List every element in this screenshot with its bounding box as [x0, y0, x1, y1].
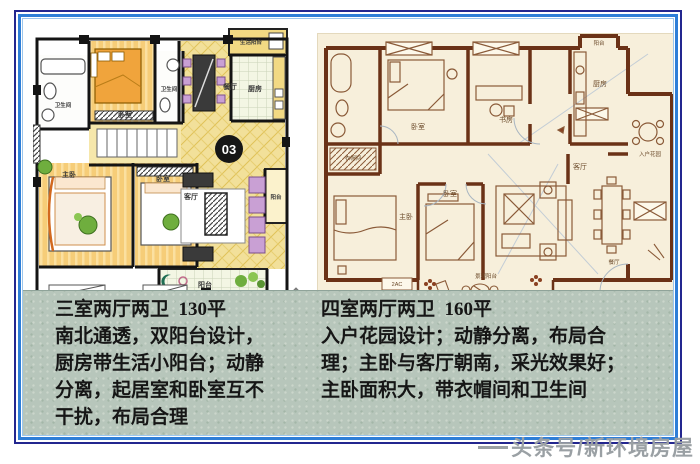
left-desc-line-4: 分离，起居室和卧室互不 — [55, 377, 305, 404]
room-label-entry-garden: 入户花园 — [639, 150, 662, 158]
floorplan-left-unit-03: 03 卫生间 卧室 卫生间 餐厅 生活阳台 厨房 主卧 卧室 客厅 阳台 阳台 — [33, 27, 307, 305]
room-label-view-balcony: 景观阳台 — [475, 272, 498, 280]
room-label-bedroom-bottom: 卧室 — [443, 189, 457, 198]
room-label-service-balcony: 生活阳台 — [240, 38, 263, 46]
right-desc-line-1: 四室两厅两卫 160平 — [321, 296, 671, 323]
right-desc-line-3: 理；主卧与客厅朝南，采光效果好； — [321, 350, 671, 377]
plant — [38, 160, 52, 174]
entry-furniture — [648, 244, 664, 260]
unit-badge-number: 03 — [222, 142, 236, 157]
room-label-living: 客厅 — [573, 162, 587, 171]
window-symbols — [386, 42, 666, 220]
room-label-balcony-side: 阳台 — [270, 193, 282, 201]
room-label-dining: 餐厅 — [608, 258, 620, 266]
right-desc-line-2: 入户花园设计；动静分离，布局合 — [321, 323, 671, 350]
left-unit-description: 三室两厅两卫 130平 南北通透，双阳台设计， 厨房带生活小阳台；动静 分离，起… — [55, 296, 305, 431]
room-label-master: 主卧 — [399, 212, 413, 221]
description-band: 三室两厅两卫 130平 南北通透，双阳台设计， 厨房带生活小阳台；动静 分离，起… — [23, 290, 673, 435]
floorplan-right-drawing: 2AC 卧室 书房 厨房 阳台 入户花园 衣帽间 主卧 卧室 客厅 餐厅 景观阳… — [318, 34, 674, 302]
room-label-dining: 餐厅 — [222, 82, 237, 91]
floorplan-right-unit: 2AC 卧室 书房 厨房 阳台 入户花园 衣帽间 主卧 卧室 客厅 餐厅 景观阳… — [317, 33, 674, 303]
watermark: 头条号/新环境房屋 — [478, 432, 694, 462]
ac-platform: 2AC — [382, 278, 412, 290]
room-label-closet: 衣帽间 — [345, 154, 362, 162]
unit-badge: 03 — [215, 135, 243, 163]
outer-walls — [326, 36, 672, 280]
right-desc-line-4: 主卧面积大，带衣帽间和卫生间 — [321, 377, 671, 404]
room-label-kitchen: 厨房 — [248, 84, 262, 93]
wardrobe — [97, 129, 177, 157]
room-label-bedroom-top: 卧室 — [118, 110, 132, 119]
room-label-study: 书房 — [499, 115, 513, 124]
ac-label: 2AC — [392, 282, 403, 288]
master-bed — [334, 196, 396, 274]
room-label-living: 客厅 — [183, 192, 198, 201]
blue-frame: 03 卫生间 卧室 卫生间 餐厅 生活阳台 厨房 主卧 卧室 客厅 阳台 阳台 — [14, 10, 682, 444]
room-label-balcony-bottom: 阳台 — [198, 280, 212, 289]
bedroom-top-bed — [388, 60, 457, 110]
dining-set — [594, 177, 630, 253]
living-furniture — [496, 182, 572, 260]
room-label-balcony-top: 阳台 — [593, 39, 605, 47]
room-label-bedroom-bottom: 卧室 — [156, 174, 170, 183]
dining-set — [183, 55, 225, 111]
study-desk — [476, 86, 522, 116]
bath-fixtures — [331, 54, 351, 137]
right-unit-description: 四室两厅两卫 160平 入户花园设计；动静分离，布局合 理；主卧与客厅朝南，采光… — [321, 296, 671, 404]
room-label-kitchen: 厨房 — [593, 79, 607, 88]
kitchen-counters — [574, 52, 586, 136]
left-desc-line-3: 厨房带生活小阳台；动静 — [55, 350, 305, 377]
left-desc-line-1: 三室两厅两卫 130平 — [55, 296, 305, 323]
left-desc-line-2: 南北通透，双阳台设计， — [55, 323, 305, 350]
left-desc-line-5: 干扰，布局合理 — [55, 404, 305, 431]
watermark-dash-icon — [478, 446, 508, 449]
room-label-master: 主卧 — [62, 170, 76, 179]
room-label-bath2: 卫生间 — [161, 85, 178, 93]
bedroom-top-bed — [91, 49, 141, 103]
master-bed — [49, 177, 111, 251]
watermark-text: 头条号/新环境房屋 — [511, 432, 694, 462]
room-label-bath1: 卫生间 — [55, 101, 72, 109]
room-label-bedroom-top: 卧室 — [411, 122, 425, 131]
floorplan-left-drawing: 03 卫生间 卧室 卫生间 餐厅 生活阳台 厨房 主卧 卧室 客厅 阳台 阳台 — [33, 27, 307, 305]
